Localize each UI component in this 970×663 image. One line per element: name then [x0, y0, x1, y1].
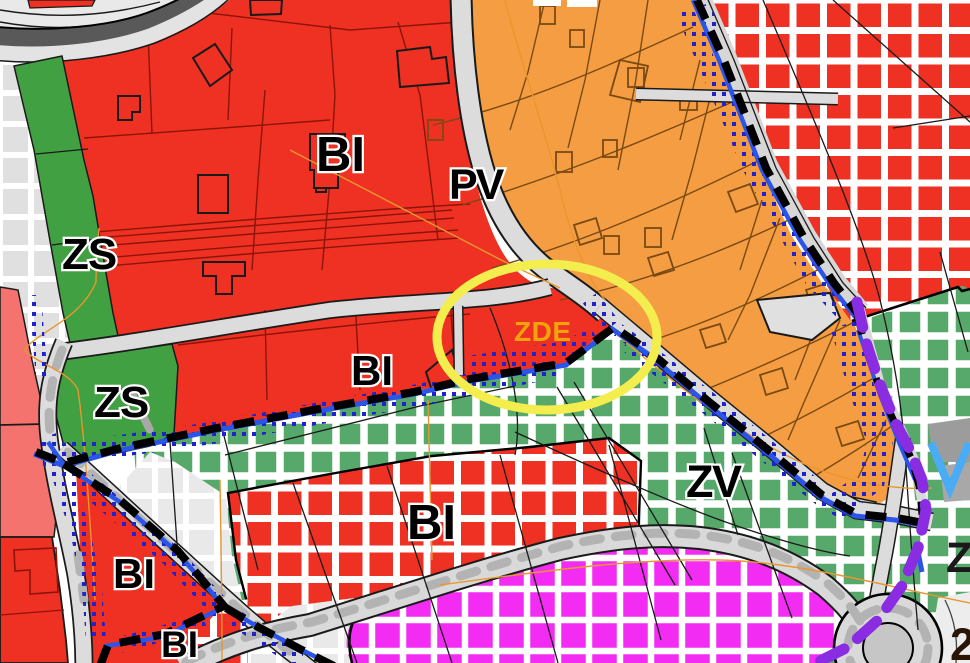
svg-text:ZS: ZS — [94, 378, 148, 427]
svg-text:BI: BI — [113, 550, 155, 597]
svg-text:BI: BI — [351, 347, 393, 394]
svg-text:ZS: ZS — [62, 230, 116, 279]
svg-text:BI: BI — [161, 624, 198, 663]
svg-text:PV: PV — [449, 161, 505, 209]
svg-text:BI: BI — [407, 496, 456, 550]
svg-text:ZV: ZV — [686, 456, 742, 507]
svg-text:BI: BI — [316, 128, 365, 182]
svg-text:Z: Z — [946, 534, 970, 582]
svg-text:2: 2 — [950, 619, 970, 663]
svg-text:ZDE: ZDE — [514, 316, 572, 347]
